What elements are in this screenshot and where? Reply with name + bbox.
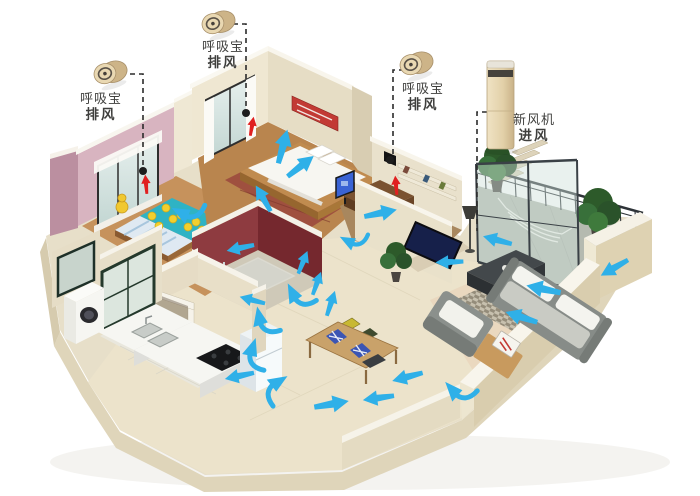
- wall-vent-dot: [139, 167, 147, 175]
- wall-vent-dot: [242, 109, 250, 117]
- callout-line1: 呼吸宝: [384, 81, 462, 97]
- callout-line2: 排风: [384, 97, 462, 113]
- callout-exhaust-child: 呼吸宝 排风: [62, 91, 140, 123]
- callout-line2: 排风: [184, 55, 262, 71]
- exhaust-fan-device: [199, 7, 239, 43]
- wall-vent-dot: [386, 156, 394, 164]
- callout-exhaust-study: 呼吸宝 排风: [384, 81, 462, 113]
- callout-line2: 排风: [62, 107, 140, 123]
- callout-line1: 呼吸宝: [184, 39, 262, 55]
- callout-fresh-air: 新风机 进风: [495, 112, 573, 144]
- callout-line2: 进风: [495, 128, 573, 144]
- exhaust-fan-device: [397, 48, 437, 84]
- callout-exhaust-master: 呼吸宝 排风: [184, 39, 262, 71]
- callout-line1: 呼吸宝: [62, 91, 140, 107]
- exhaust-fan-device: [91, 57, 131, 93]
- callout-line1: 新风机: [495, 112, 573, 128]
- ventilation-floorplan-illustration: 呼吸宝 排风 呼吸宝 排风 呼吸宝 排风 新风机 进风: [0, 0, 700, 496]
- teddy-bear: [116, 194, 128, 213]
